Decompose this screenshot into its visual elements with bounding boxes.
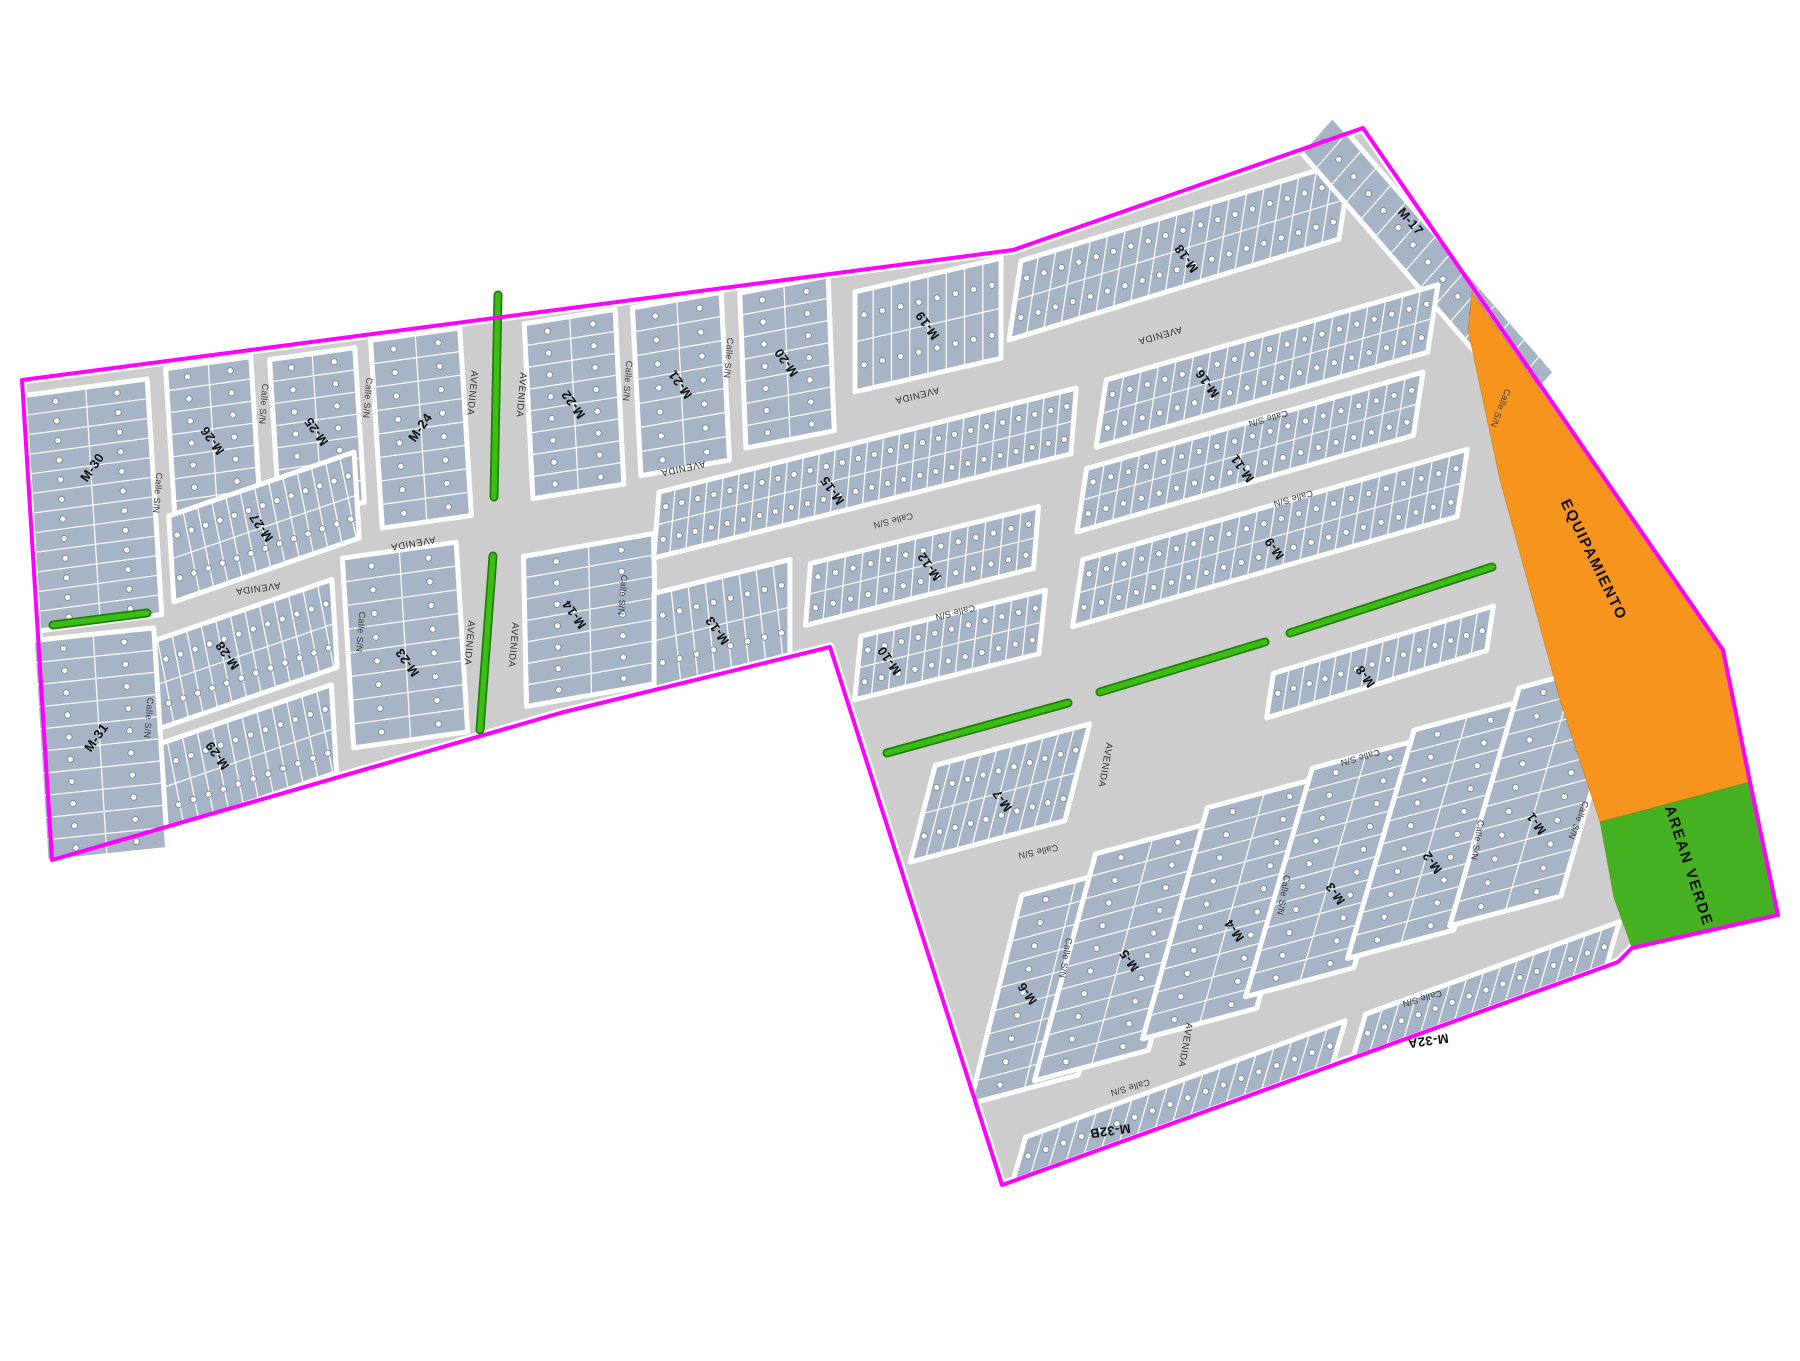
block-M-21: M-21 bbox=[632, 292, 729, 475]
block-M-24: M-24 bbox=[371, 328, 472, 528]
plan-svg: M-30M-26M-25M-24M-22M-21M-20M-19M-27M-28… bbox=[0, 0, 1800, 1361]
block-M-31: M-31 bbox=[32, 628, 167, 862]
block-M-20: M-20 bbox=[740, 276, 835, 448]
block-M-30: M-30 bbox=[24, 379, 162, 631]
subdivision-map: M-30M-26M-25M-24M-22M-21M-20M-19M-27M-28… bbox=[0, 0, 1800, 1361]
block-M-14: M-14 bbox=[524, 534, 657, 707]
block-M-22: M-22 bbox=[524, 309, 624, 498]
